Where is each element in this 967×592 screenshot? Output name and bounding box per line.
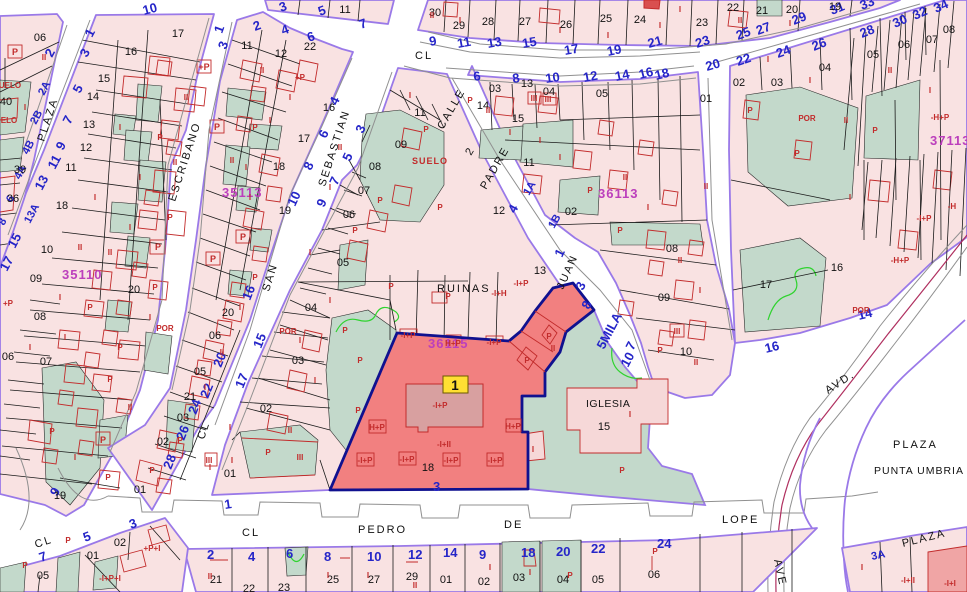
svg-text:26: 26: [560, 19, 572, 31]
svg-text:02: 02: [157, 436, 169, 448]
svg-text:III: III: [545, 95, 552, 104]
svg-text:P: P: [567, 571, 573, 580]
svg-text:P: P: [177, 436, 183, 445]
svg-text:2: 2: [207, 547, 214, 562]
svg-text:PEDRO: PEDRO: [358, 524, 407, 536]
svg-text:I: I: [129, 223, 131, 232]
svg-text:11: 11: [65, 162, 76, 174]
svg-text:-I+P: -I+P: [444, 456, 460, 465]
svg-text:II: II: [678, 256, 682, 265]
svg-text:13: 13: [83, 119, 95, 131]
svg-text:P: P: [546, 332, 552, 341]
svg-text:03: 03: [292, 355, 304, 367]
svg-text:III: III: [206, 456, 213, 465]
svg-text:I: I: [767, 55, 769, 64]
svg-text:I: I: [559, 26, 561, 35]
svg-text:I: I: [329, 296, 331, 305]
svg-text:11: 11: [456, 34, 472, 51]
svg-text:II: II: [260, 66, 264, 75]
svg-text:II: II: [78, 243, 82, 252]
svg-text:11: 11: [523, 157, 534, 169]
svg-text:P: P: [12, 47, 18, 57]
svg-text:15: 15: [598, 421, 610, 433]
svg-text:I: I: [314, 376, 316, 385]
svg-text:I: I: [94, 193, 96, 202]
svg-text:05: 05: [867, 49, 879, 61]
svg-text:II: II: [888, 66, 892, 75]
svg-text:6: 6: [286, 546, 293, 561]
svg-text:05: 05: [592, 574, 604, 586]
svg-text:09: 09: [30, 273, 42, 285]
svg-text:35113: 35113: [222, 185, 262, 200]
svg-text:10: 10: [544, 69, 560, 86]
svg-text:I: I: [809, 76, 811, 85]
svg-text:-I+P: -I+P: [917, 214, 933, 223]
svg-text:P: P: [65, 536, 71, 545]
svg-text:P: P: [352, 226, 358, 235]
svg-text:07: 07: [40, 356, 52, 368]
svg-text:15: 15: [512, 113, 524, 125]
svg-text:P: P: [794, 149, 800, 158]
svg-text:-I+I: -I+I: [944, 579, 956, 588]
svg-text:P: P: [265, 448, 271, 457]
svg-text:22: 22: [304, 41, 316, 53]
svg-text:10: 10: [367, 549, 381, 564]
svg-text:P: P: [240, 232, 246, 242]
svg-text:P: P: [105, 473, 111, 482]
svg-text:I: I: [629, 410, 631, 419]
svg-text:03: 03: [177, 412, 189, 424]
svg-text:P: P: [342, 326, 348, 335]
svg-text:11: 11: [241, 40, 252, 52]
svg-text:II: II: [288, 426, 292, 435]
svg-text:16: 16: [831, 262, 843, 274]
svg-text:-I+P: -I+P: [400, 455, 416, 464]
svg-text:P: P: [214, 122, 220, 132]
svg-text:P: P: [157, 133, 163, 142]
svg-text:05: 05: [337, 257, 349, 269]
svg-text:-I+P: -I+P: [401, 331, 417, 340]
svg-text:P: P: [149, 466, 155, 475]
svg-text:27: 27: [519, 16, 531, 28]
svg-text:09: 09: [658, 292, 670, 304]
svg-text:I: I: [299, 336, 301, 345]
svg-text:P: P: [652, 547, 658, 556]
svg-text:II: II: [173, 158, 177, 167]
svg-text:I: I: [647, 203, 649, 212]
svg-text:H+P: H+P: [445, 339, 461, 348]
svg-text:CL: CL: [415, 50, 433, 62]
svg-text:I: I: [239, 303, 241, 312]
svg-text:07: 07: [358, 185, 370, 197]
svg-text:12: 12: [80, 142, 92, 154]
svg-text:15: 15: [521, 34, 538, 51]
svg-text:19: 19: [54, 490, 66, 502]
svg-text:1: 1: [451, 378, 459, 393]
svg-text:-I+P: -I+P: [487, 338, 503, 347]
svg-text:36: 36: [7, 193, 19, 205]
svg-text:11: 11: [339, 4, 350, 16]
svg-text:P: P: [619, 466, 625, 475]
svg-text:I: I: [409, 91, 411, 100]
svg-text:08: 08: [34, 311, 46, 323]
svg-text:19: 19: [279, 205, 291, 217]
svg-text:P: P: [467, 96, 473, 105]
svg-text:I: I: [269, 116, 271, 125]
svg-text:+P: +P: [295, 73, 306, 82]
svg-text:08: 08: [666, 243, 678, 255]
svg-text:I: I: [929, 86, 931, 95]
svg-text:I: I: [532, 445, 534, 454]
svg-text:21: 21: [184, 391, 196, 403]
svg-text:19: 19: [829, 1, 841, 13]
svg-text:I: I: [529, 568, 531, 577]
svg-text:I: I: [679, 5, 681, 14]
svg-text:II: II: [704, 182, 708, 191]
svg-text:14: 14: [87, 91, 99, 103]
svg-text:03: 03: [489, 83, 501, 95]
svg-text:IGLESIA: IGLESIA: [586, 398, 630, 410]
svg-text:I: I: [29, 343, 31, 352]
svg-text:15: 15: [98, 73, 110, 85]
svg-text:II: II: [413, 581, 417, 590]
svg-text:+P+I: +P+I: [144, 544, 161, 553]
svg-text:II: II: [42, 53, 46, 62]
svg-text:POR: POR: [279, 327, 297, 336]
svg-text:II: II: [430, 11, 434, 20]
svg-text:I: I: [607, 31, 609, 40]
svg-text:20: 20: [786, 4, 798, 16]
svg-text:35110: 35110: [62, 267, 102, 282]
svg-text:ELO: ELO: [1, 116, 17, 125]
svg-text:P: P: [747, 106, 753, 115]
svg-text:I: I: [231, 456, 233, 465]
svg-text:I: I: [539, 136, 541, 145]
svg-text:P: P: [167, 213, 173, 222]
svg-text:04: 04: [819, 62, 831, 74]
svg-text:10: 10: [41, 244, 53, 256]
svg-text:28: 28: [482, 16, 494, 28]
svg-text:06: 06: [898, 39, 910, 51]
svg-text:I: I: [119, 123, 121, 132]
svg-text:II: II: [108, 248, 112, 257]
svg-text:II: II: [486, 106, 490, 115]
svg-text:+P: +P: [3, 299, 14, 308]
svg-text:05: 05: [37, 570, 49, 582]
svg-text:P: P: [107, 375, 113, 384]
svg-text:P: P: [657, 346, 663, 355]
svg-text:06: 06: [2, 351, 14, 363]
svg-text:14: 14: [443, 545, 458, 560]
svg-text:-H: -H: [948, 202, 957, 211]
svg-text:II: II: [844, 116, 848, 125]
svg-text:II: II: [220, 348, 224, 357]
svg-text:III: III: [531, 94, 538, 103]
svg-text:-I+P: -I+P: [433, 401, 449, 410]
svg-text:-I+II: -I+II: [437, 440, 451, 449]
svg-text:20: 20: [128, 284, 140, 296]
svg-text:I: I: [489, 563, 491, 572]
svg-text:19: 19: [606, 41, 623, 59]
svg-text:01: 01: [700, 93, 712, 105]
svg-text:I: I: [849, 193, 851, 202]
svg-text:01: 01: [440, 574, 452, 586]
svg-text:PUNTA UMBRIA: PUNTA UMBRIA: [874, 465, 964, 477]
svg-text:POR: POR: [852, 306, 870, 315]
svg-text:39: 39: [14, 164, 26, 176]
svg-text:P: P: [445, 292, 451, 301]
svg-text:I: I: [64, 333, 66, 342]
svg-text:I: I: [509, 128, 511, 137]
svg-text:LOPE: LOPE: [722, 514, 759, 526]
svg-text:18: 18: [521, 545, 535, 560]
svg-text:06: 06: [648, 569, 660, 581]
svg-text:02: 02: [565, 206, 577, 218]
svg-text:+P: +P: [198, 62, 209, 72]
svg-text:II: II: [623, 173, 627, 182]
svg-text:23: 23: [278, 582, 290, 592]
svg-text:I: I: [309, 248, 311, 257]
svg-text:I: I: [204, 383, 206, 392]
svg-text:POR: POR: [156, 324, 174, 333]
svg-text:11: 11: [414, 107, 425, 119]
svg-text:18: 18: [273, 161, 285, 173]
svg-text:I: I: [367, 571, 369, 580]
svg-text:UELO: UELO: [0, 81, 21, 90]
svg-text:P: P: [49, 427, 55, 436]
svg-text:P: P: [355, 406, 361, 415]
svg-text:I: I: [699, 286, 701, 295]
svg-text:II: II: [338, 143, 342, 152]
svg-text:-H+P: -H+P: [931, 113, 950, 122]
svg-text:36113: 36113: [598, 186, 638, 201]
svg-text:27: 27: [368, 574, 380, 586]
svg-text:SUELO: SUELO: [412, 156, 448, 166]
svg-text:P: P: [22, 561, 28, 570]
svg-text:17: 17: [760, 279, 772, 291]
svg-text:I: I: [327, 571, 329, 580]
svg-text:8: 8: [324, 549, 331, 564]
svg-text:05: 05: [194, 366, 206, 378]
svg-text:P: P: [377, 196, 383, 205]
svg-text:01: 01: [87, 550, 99, 562]
svg-text:21: 21: [756, 5, 768, 17]
svg-text:II: II: [128, 403, 132, 412]
svg-text:12: 12: [493, 205, 505, 217]
svg-text:22: 22: [591, 541, 605, 556]
svg-text:-I+P: -I+P: [514, 279, 530, 288]
svg-text:23: 23: [696, 17, 708, 29]
svg-text:II: II: [551, 344, 555, 353]
svg-text:I: I: [229, 423, 231, 432]
svg-text:-H+P: -H+P: [891, 256, 910, 265]
svg-text:II: II: [694, 358, 698, 367]
svg-text:3: 3: [433, 479, 440, 494]
svg-text:I: I: [59, 293, 61, 302]
svg-text:08: 08: [943, 24, 955, 36]
svg-text:P: P: [587, 186, 593, 195]
svg-text:17: 17: [563, 41, 580, 58]
svg-text:18: 18: [56, 200, 68, 212]
svg-text:02: 02: [260, 403, 272, 415]
svg-text:I: I: [659, 21, 661, 30]
svg-text:12: 12: [408, 547, 422, 562]
svg-text:20: 20: [222, 307, 234, 319]
svg-text:II: II: [230, 156, 234, 165]
svg-text:I: I: [329, 183, 331, 192]
svg-text:II: II: [208, 572, 212, 581]
svg-text:22: 22: [243, 583, 255, 592]
svg-text:CL: CL: [242, 527, 260, 539]
svg-text:I: I: [459, 16, 461, 25]
svg-text:16: 16: [323, 102, 335, 114]
svg-text:I: I: [861, 563, 863, 572]
svg-text:20: 20: [556, 544, 570, 559]
svg-text:I: I: [245, 163, 247, 172]
svg-text:13: 13: [521, 78, 533, 90]
svg-text:DE: DE: [504, 519, 523, 531]
svg-text:18: 18: [422, 462, 434, 474]
svg-text:P: P: [100, 435, 106, 445]
svg-text:06: 06: [34, 32, 46, 44]
svg-text:02: 02: [114, 537, 126, 549]
svg-text:12: 12: [582, 68, 599, 85]
svg-text:III: III: [674, 327, 681, 336]
svg-text:40: 40: [0, 96, 12, 108]
svg-text:25: 25: [600, 13, 612, 25]
svg-text:22: 22: [727, 2, 739, 14]
svg-text:03: 03: [771, 77, 783, 89]
svg-text:12: 12: [275, 48, 287, 60]
svg-text:09: 09: [395, 139, 407, 151]
svg-text:-I+P: -I+P: [488, 456, 504, 465]
svg-text:17: 17: [172, 28, 184, 40]
svg-text:08: 08: [369, 161, 381, 173]
svg-text:05: 05: [596, 88, 608, 100]
svg-text:13: 13: [486, 34, 503, 51]
svg-text:01: 01: [134, 484, 146, 496]
svg-text:P: P: [155, 242, 161, 252]
svg-text:PLAZA: PLAZA: [893, 439, 938, 451]
svg-text:02: 02: [733, 77, 745, 89]
svg-text:24: 24: [657, 536, 672, 551]
svg-text:I: I: [559, 153, 561, 162]
svg-text:-I+H: -I+H: [491, 289, 507, 298]
svg-text:01: 01: [224, 468, 236, 480]
svg-text:P: P: [617, 226, 623, 235]
svg-text:06: 06: [209, 330, 221, 342]
svg-text:I: I: [249, 193, 251, 202]
svg-text:P: P: [210, 254, 216, 264]
svg-text:P: P: [252, 123, 258, 132]
svg-text:9: 9: [479, 547, 486, 562]
svg-text:P: P: [357, 356, 363, 365]
svg-text:17: 17: [298, 133, 310, 145]
svg-text:P: P: [117, 343, 123, 352]
svg-text:II: II: [184, 93, 188, 102]
svg-text:P: P: [524, 356, 530, 365]
svg-text:-I+P: -I+P: [358, 456, 374, 465]
svg-text:02: 02: [478, 576, 490, 588]
svg-text:04: 04: [305, 302, 317, 314]
svg-text:-I+II: -I+II: [901, 576, 915, 585]
svg-text:I: I: [24, 103, 26, 112]
svg-text:P: P: [423, 125, 429, 134]
svg-text:P: P: [872, 126, 878, 135]
svg-text:24: 24: [634, 14, 646, 26]
svg-text:10: 10: [680, 346, 692, 358]
svg-text:I: I: [789, 19, 791, 28]
svg-text:16: 16: [125, 46, 137, 58]
svg-text:I: I: [289, 93, 291, 102]
svg-text:POR: POR: [798, 114, 816, 123]
svg-text:II: II: [738, 16, 742, 25]
svg-text:4: 4: [248, 549, 256, 564]
svg-text:-I+P+I: -I+P+I: [99, 574, 121, 583]
svg-text:03: 03: [513, 572, 525, 584]
svg-text:37113: 37113: [930, 133, 967, 148]
svg-text:H+P: H+P: [369, 423, 385, 432]
svg-text:P: P: [388, 282, 394, 291]
svg-text:06: 06: [343, 209, 355, 221]
svg-text:I: I: [139, 173, 141, 182]
svg-text:I: I: [74, 453, 76, 462]
svg-text:I: I: [149, 313, 151, 322]
svg-text:P: P: [437, 203, 443, 212]
svg-text:P: P: [87, 303, 93, 312]
svg-text:P: P: [252, 273, 258, 282]
svg-text:P: P: [152, 283, 158, 292]
svg-text:07: 07: [926, 34, 938, 46]
svg-text:H+P: H+P: [505, 422, 521, 431]
svg-text:13: 13: [534, 265, 546, 277]
svg-text:III: III: [297, 453, 304, 462]
